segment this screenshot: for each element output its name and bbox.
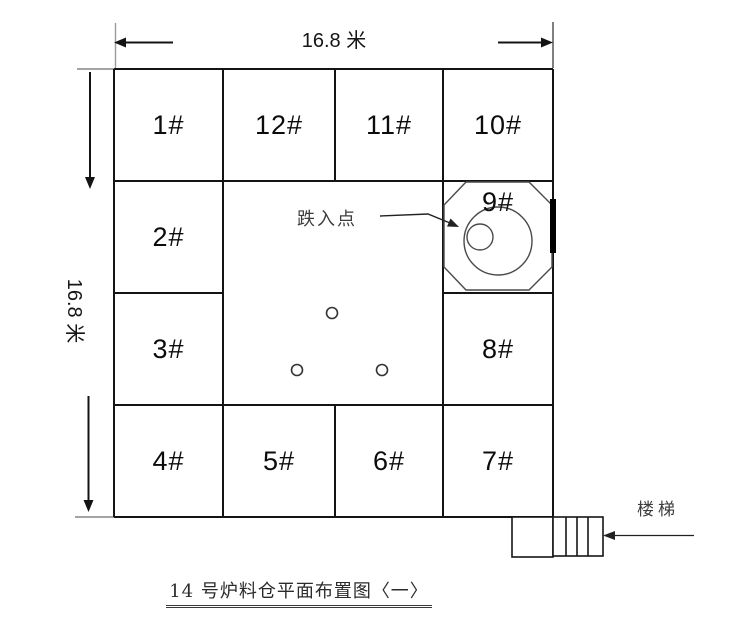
stairs (512, 517, 603, 557)
silo-cell-7: 7# (443, 405, 553, 517)
drop-point-leader-line (380, 214, 450, 223)
silo-cell-12: 12# (223, 69, 335, 181)
stairs-treads-box (553, 517, 603, 556)
caption: 14 号炉料仓平面布置图〈一〉 (166, 582, 432, 608)
silo-cell-11: 11# (335, 69, 443, 181)
silo-cell-1: 1# (114, 69, 223, 181)
hopper-inner-circle (467, 224, 493, 250)
drop-point-label: 跌入点 (290, 206, 364, 230)
anchor-circle-right (377, 365, 388, 376)
silo-cell-2: 2# (114, 181, 223, 293)
drop-point-arrowhead (447, 219, 459, 228)
center-anchor-circles (292, 308, 388, 376)
silo-cell-8: 8# (443, 293, 553, 405)
silo-cell-10: 10# (443, 69, 553, 181)
silo-cell-4: 4# (114, 405, 223, 517)
stairs-label: 楼梯 (629, 496, 687, 518)
silo-cell-9: 9# (443, 186, 553, 218)
floor-plan-page: 16.8 米 16.8 米 1# 12# 11# 10# 2# 9# 3# 8#… (0, 0, 752, 619)
stairs-leader (603, 531, 694, 540)
left-dim-arrowhead-lower (84, 500, 94, 512)
anchor-circle-left (292, 365, 303, 376)
stairs-arrowhead (603, 531, 615, 540)
stairs-landing (512, 517, 553, 557)
silo-cell-5: 5# (223, 405, 335, 517)
silo-cell-6: 6# (335, 405, 443, 517)
top-dim-arrowhead-right (541, 38, 553, 48)
silo-cell-3: 3# (114, 293, 223, 405)
left-dimension-label: 16.8 米 (62, 266, 92, 356)
top-dimension-label: 16.8 米 (292, 25, 376, 51)
left-dim-arrowhead-upper (85, 177, 95, 189)
anchor-circle-top (327, 308, 338, 319)
